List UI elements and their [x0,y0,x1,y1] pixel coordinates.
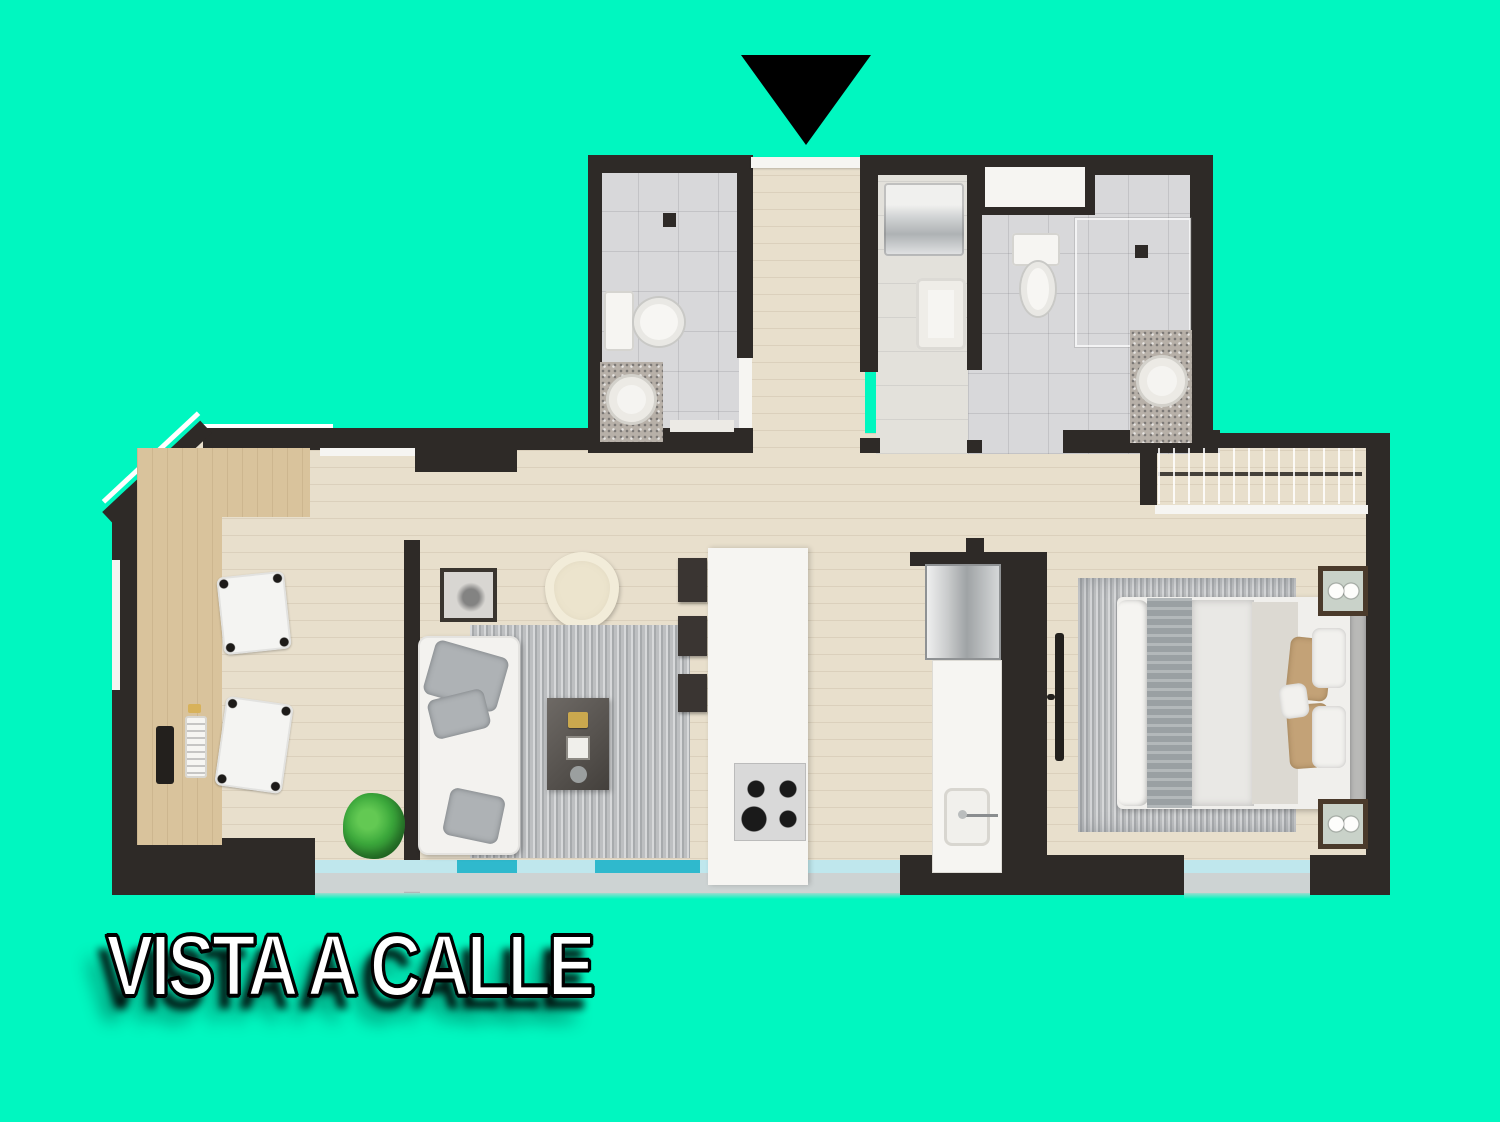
entry-hall-floor [750,158,865,454]
toilet-tank [604,291,634,351]
wall [737,167,753,358]
desk-tv [156,726,174,784]
wall-column [415,448,517,472]
bathroom-1-door-threshold [739,358,752,428]
nightstand [1318,799,1368,849]
keyboard [185,716,207,778]
round-sink [606,374,657,425]
table-decor [566,736,590,760]
side-window [112,560,120,690]
wall [860,163,878,372]
desk-counter [137,517,222,845]
bar-stool [678,616,707,656]
shower-head-icon [1135,245,1148,258]
kitchen-sink [944,788,990,846]
bedroom-window [1184,860,1310,873]
wall [860,438,880,453]
fridge [925,564,1001,660]
plant [343,793,405,859]
pillow [1312,706,1346,768]
desk-floor [137,448,310,517]
pillow [1278,682,1310,720]
office-chair [216,571,292,656]
bath-mat [670,420,734,432]
wall [112,838,315,895]
headboard [1350,600,1366,806]
wall [1310,855,1390,895]
bar-stool [678,558,707,602]
toilet-bowl [632,296,686,348]
wall [1366,433,1390,895]
nightstand [1318,566,1368,616]
wall [1140,433,1157,505]
high-window [985,167,1085,207]
desk-item [188,704,201,713]
round-sink [1136,355,1188,407]
bedroom-window-sill [1184,873,1310,899]
wardrobe-hangers [1158,448,1362,504]
balcony-glazing-bright [457,860,517,873]
wall-stub [966,538,984,554]
balcony-glazing-bright [595,860,700,873]
tv-bracket [1047,694,1055,700]
wall [967,440,982,453]
bed-folded-duvet [1117,600,1149,806]
office-chair [214,696,294,795]
shower-area [1075,218,1191,347]
closet-shelf [1155,505,1368,514]
wall [1190,155,1213,445]
table-decor [568,712,588,728]
washer [884,183,964,256]
table-decor [570,766,587,783]
bar-stool [678,674,707,712]
cooktop [734,763,806,841]
wall [588,155,753,173]
window-sill [320,448,415,456]
bed-quilt [1192,600,1254,806]
wall [1000,552,1047,883]
entrance-arrow-icon [741,55,871,145]
drain [958,810,967,819]
bedroom-tv [1055,633,1064,761]
floor-plan: VISTA A CALLE [0,0,1500,1122]
laundry-sink [916,278,966,350]
balcony-sill [315,873,900,899]
bed-throw-blanket [1147,598,1192,808]
wall [203,428,588,450]
picture-frame [440,568,497,622]
shower-head-icon [663,213,676,227]
toilet-bowl [1019,260,1057,318]
faucet [964,814,998,817]
entrance-threshold [751,157,861,168]
pillow [1312,628,1346,688]
caption-text: VISTA A CALLE [106,916,592,1015]
